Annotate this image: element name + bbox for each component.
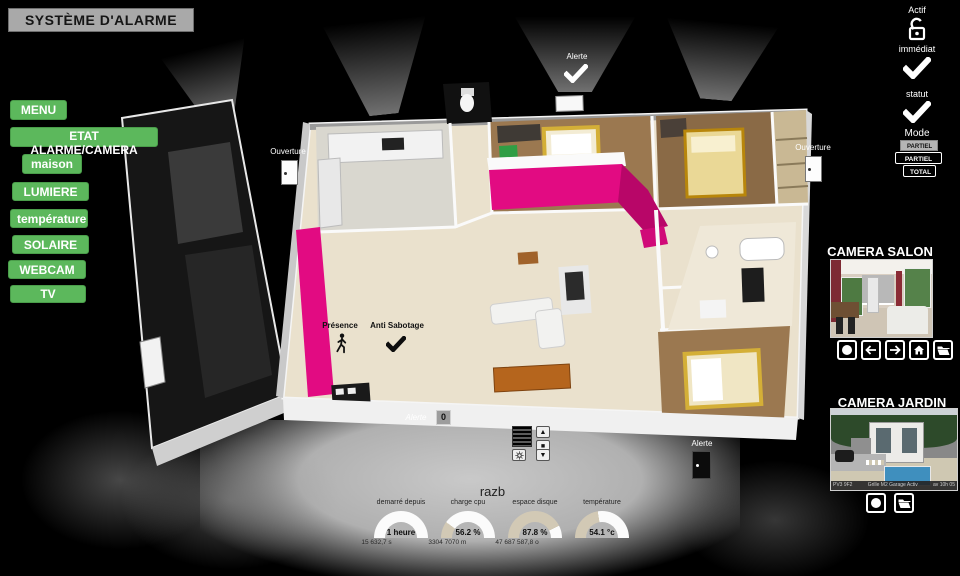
- immediat-checkmark-icon: [903, 57, 931, 79]
- gauge-temperature: température 54.1 °c: [570, 499, 634, 561]
- alerte-count-badge: 0: [436, 410, 451, 425]
- jardin-status-bar: PV3 9F2 Grille M2 Garage Activ av 10h 05: [831, 481, 957, 490]
- salon-sofa: [887, 306, 928, 334]
- door-closed-alert-icon: [692, 451, 711, 479]
- statut-checkmark-icon: [903, 101, 931, 123]
- menu-webcam[interactable]: WEBCAM: [8, 260, 86, 279]
- menu-tv[interactable]: TV: [10, 285, 86, 303]
- mode-label: Mode: [887, 128, 947, 139]
- camera-jardin-view[interactable]: PV3 9F2 Grille M2 Garage Activ av 10h 05: [830, 408, 958, 491]
- anti-sabotage-checkmark-icon: [386, 336, 406, 352]
- door-handle: [808, 168, 811, 171]
- salon-stool: [836, 317, 843, 334]
- jardin-car: [835, 450, 854, 463]
- jardin-deckchairs: [866, 460, 884, 465]
- gauge-value: 1 heure: [369, 528, 433, 537]
- statut-label: statut: [887, 89, 947, 99]
- shutter-down-button[interactable]: ▼: [536, 449, 550, 461]
- presence-label: Présence: [312, 321, 368, 330]
- camera-salon-title: CAMERA SALON: [820, 244, 940, 259]
- menu-etat-alarme-camera[interactable]: ETAT ALARME/CAMERA: [10, 127, 158, 147]
- jardin-status-right: av 10h 05: [933, 481, 955, 490]
- walking-person-icon: [334, 333, 349, 354]
- salon-window-right: [904, 268, 931, 309]
- mode-total-button[interactable]: TOTAL: [903, 165, 936, 177]
- home-icon: [913, 344, 925, 356]
- camera-salon-next-button[interactable]: [885, 340, 905, 360]
- camera-salon-record-button[interactable]: [837, 340, 857, 360]
- folder-icon: [937, 345, 950, 356]
- alarm-dashboard: SYSTÈME D'ALARME MENU ETAT ALARME/CAMERA…: [0, 0, 960, 576]
- gauge-uptime: demarré depuis 1 heure 15 632,7 s: [369, 499, 433, 561]
- actif-label: Actif: [887, 5, 947, 15]
- camera-jardin-record-button[interactable]: [866, 493, 886, 513]
- menu-button[interactable]: MENU: [10, 100, 67, 120]
- gauge-label: demarré depuis: [369, 499, 433, 509]
- arrow-left-icon: [865, 344, 877, 356]
- alerte-top-label: Alerte: [555, 52, 599, 61]
- alerte-shutter-label: Alerte: [398, 413, 434, 422]
- door-handle: [696, 464, 699, 467]
- salon-stool: [848, 317, 855, 334]
- shutter-icon: [512, 426, 532, 447]
- sun-icon: [515, 451, 524, 460]
- menu-lumiere[interactable]: LUMIERE: [12, 182, 89, 201]
- gauge-label: température: [570, 499, 634, 509]
- menu-solaire[interactable]: SOLAIRE: [12, 235, 89, 254]
- mode-partiel-nuit-button[interactable]: PARTIEL NUIT: [895, 152, 942, 164]
- camera-salon-prev-button[interactable]: [861, 340, 881, 360]
- system-hostname: razb: [400, 484, 585, 499]
- page-title: SYSTÈME D'ALARME: [8, 8, 194, 32]
- gauge-label: charge cpu: [436, 499, 500, 509]
- folder-icon: [898, 498, 911, 509]
- salon-fridge: [867, 277, 879, 313]
- salon-bar: [831, 302, 859, 317]
- gauge-value: 56.2 %: [436, 528, 500, 537]
- camera-salon-files-button[interactable]: [933, 340, 953, 360]
- camera-jardin-files-button[interactable]: [894, 493, 914, 513]
- camera-salon-view[interactable]: [830, 259, 933, 338]
- gauge-value: 54.1 °c: [570, 528, 634, 537]
- ouverture-right-label: Ouverture: [783, 143, 843, 152]
- alerte-door-label: Alerte: [682, 439, 722, 448]
- gauge-label: espace disque: [503, 499, 567, 509]
- mode-partiel-nuit-active[interactable]: PARTIEL NUIT: [900, 140, 938, 151]
- anti-sabotage-label: Anti Sabotage: [362, 321, 432, 330]
- padlock-open-icon[interactable]: [904, 16, 930, 42]
- menu-maison[interactable]: maison: [22, 154, 82, 174]
- alerte-top-checkmark-icon: [564, 64, 588, 83]
- camera-salon-home-button[interactable]: [909, 340, 929, 360]
- jardin-house-windows: [876, 428, 891, 452]
- gauge-cpu: charge cpu 56.2 % 3304 7070 m: [436, 499, 500, 561]
- menu-temperature[interactable]: température: [10, 209, 88, 228]
- record-circle-icon: [841, 344, 853, 356]
- system-gauges: demarré depuis 1 heure 15 632,7 s charge…: [369, 499, 634, 561]
- immediat-label: immédiat: [887, 44, 947, 54]
- jardin-status-left: PV3 9F2: [833, 481, 852, 490]
- shutter-preset-button[interactable]: [512, 449, 526, 461]
- gauge-sub-value: 15 632,7 s: [361, 539, 431, 546]
- door-open-right-icon: [805, 156, 822, 182]
- ouverture-left-label: Ouverture: [258, 147, 318, 156]
- gauge-sub-value: 47 687 587,8 o: [495, 539, 565, 546]
- arrow-right-icon: [889, 344, 901, 356]
- gauge-disk: espace disque 87.8 % 47 687 587,8 o: [503, 499, 567, 561]
- record-circle-icon: [870, 497, 882, 509]
- shutter-up-button[interactable]: ▲: [536, 426, 550, 438]
- gauge-value: 87.8 %: [503, 528, 567, 537]
- gauge-sub-value: 3304 7070 m: [428, 539, 498, 546]
- door-open-left-icon: [281, 160, 298, 185]
- jardin-house-windows: [902, 428, 917, 452]
- door-handle: [284, 172, 287, 175]
- jardin-status-center: Grille M2 Garage Activ: [868, 481, 918, 490]
